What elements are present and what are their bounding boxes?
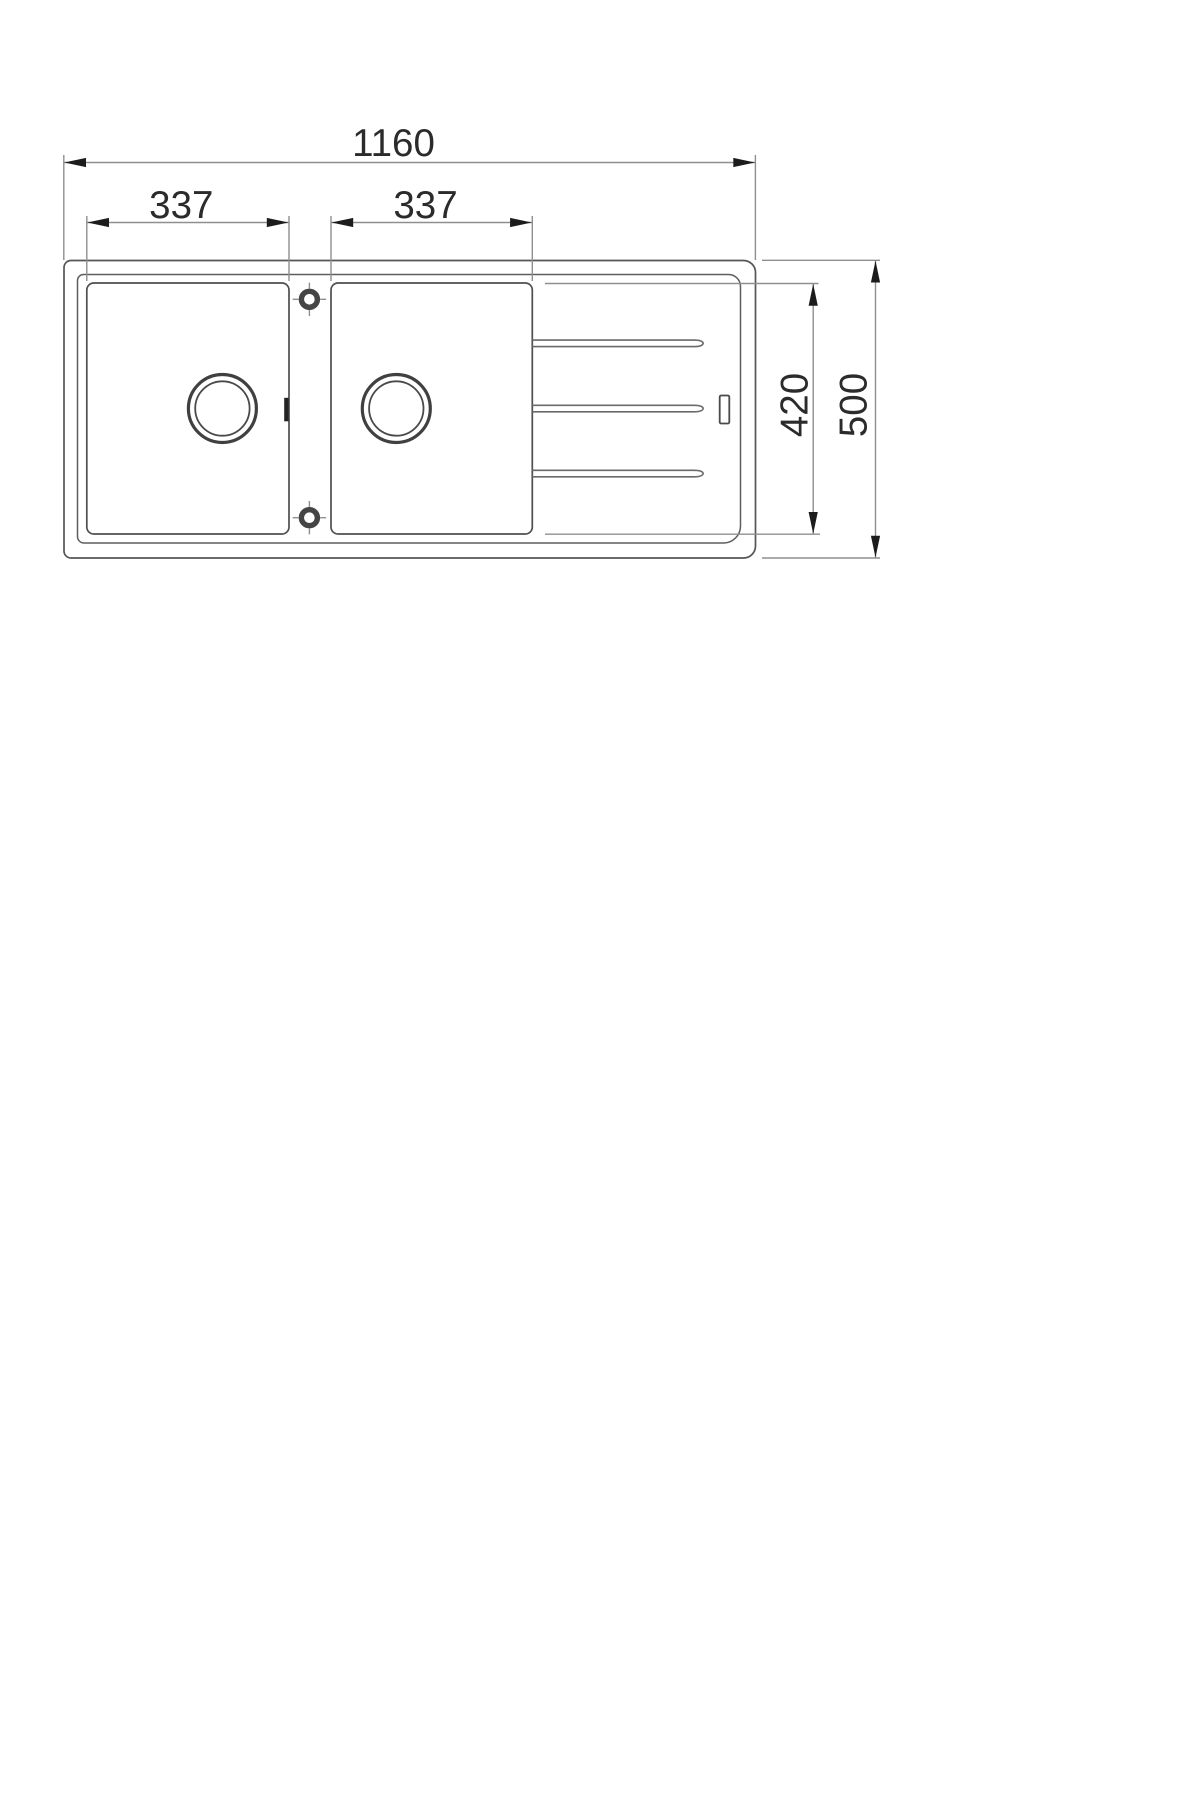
svg-text:337: 337 bbox=[393, 184, 457, 227]
svg-text:337: 337 bbox=[149, 184, 213, 227]
svg-text:1160: 1160 bbox=[352, 122, 435, 165]
svg-text:500: 500 bbox=[833, 373, 876, 437]
svg-text:420: 420 bbox=[774, 373, 817, 437]
